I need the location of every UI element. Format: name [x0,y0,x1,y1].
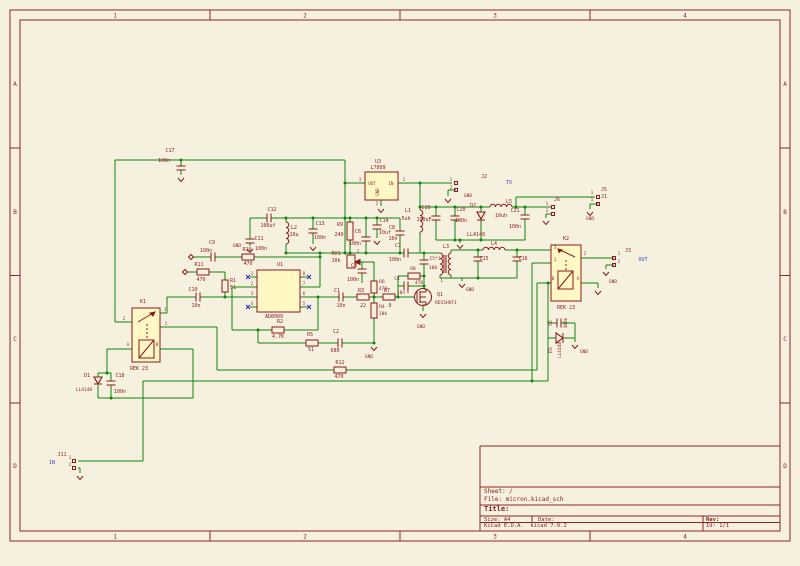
junction-dot [477,277,480,280]
schematic-label: GND [466,287,474,293]
schematic-label: L2 [291,225,297,231]
titleblock-file: File: micron.kicad_sch [484,496,563,503]
symbol-polygon [556,333,563,343]
schematic-label: 100n [200,248,212,254]
schematic-label: 100uf [260,223,275,229]
schematic-label: REK 23 [130,366,148,372]
component-body-K2[interactable] [551,245,581,301]
schematic-label: LL4148 [557,342,563,359]
schematic-label: G [407,289,410,294]
schematic-label: L3 [443,244,449,250]
component-body-U3[interactable] [365,172,398,200]
schematic-label: 100n [509,224,521,230]
schematic-label: REK 23 [557,305,575,311]
schematic-label: GND [375,188,380,196]
schematic-label: L1 [405,208,411,214]
schematic-label: 1 [591,197,594,202]
resistor-R8[interactable] [408,273,420,279]
schematic-label: D1 [84,373,90,379]
frame-row-label: B [13,209,17,216]
gnd-flag-icon [378,209,384,213]
schematic-label: 470 [243,261,252,267]
gnd-flag-icon [445,199,451,203]
net-flag-icon [183,270,188,275]
resistor-R3[interactable] [357,294,369,300]
schematic-label: RD15HVF1 [435,300,457,306]
schematic-label: R10 [242,247,251,253]
schematic-label: D3 [548,347,554,353]
schematic-label: C19 [421,205,430,211]
resistor-R12[interactable] [334,367,346,373]
junction-dot [319,256,322,259]
resistor-R2[interactable] [272,327,284,333]
schematic-label: 2 [251,281,254,286]
schematic-label: C9 [209,240,215,246]
schematic-label: C7 [395,243,401,249]
frame-col-label: 2 [303,534,307,541]
gnd-flag-icon [310,247,316,251]
schematic-label: C21 [510,208,519,214]
schematic-label: 100n [349,241,361,247]
hier-label-tx: TX [506,180,512,186]
schematic-label: GND [365,354,373,360]
junction-dot [224,296,227,299]
gnd-flag-icon [77,476,83,480]
frame-col-label: 3 [493,13,497,20]
schematic-label: OUT [368,181,376,186]
schematic-label: 470 [415,280,423,286]
schematic-label: C6 [548,320,554,326]
schematic-label: 22 [360,303,366,309]
frame-row-label: C [13,336,17,343]
schematic-label: 100n [347,277,359,283]
junction-dot [285,252,288,255]
gnd-flag-icon [587,212,593,216]
schematic-label: 100n [114,389,126,395]
junction-dot [459,239,462,242]
schematic-label: C4 [394,276,400,282]
schematic-label: J11 [57,452,66,458]
connector-pin[interactable] [455,182,458,185]
schematic-label: 2 [584,251,587,256]
schematic-label: 100n [158,158,170,164]
junction-dot [349,252,352,255]
schematic-label: 5uh [401,216,410,222]
schematic-label: R9 [337,222,343,228]
schematic-label: 100n [455,218,467,224]
schematic-label: 10k [379,311,387,317]
schematic-label: J6 [554,197,560,203]
schematic-label: 1 [251,271,254,276]
schematic-label: R1 [230,278,236,284]
schematic-label: 470 [379,286,387,292]
schematic-label: 10n [191,303,200,309]
schematic-label: K1 [140,299,146,305]
connector-pin[interactable] [73,467,76,470]
schematic-label: 100n [255,246,267,252]
gnd-flag-icon [457,245,463,249]
schematic-label: 51 [230,285,236,291]
resistor-R11[interactable] [197,269,209,275]
gnd-flag-icon [374,241,380,245]
schematic-label: RV1 [331,251,340,257]
junction-dot [180,159,183,162]
component-body-U1[interactable] [257,270,300,312]
schematic-label: C20 [456,207,465,213]
schematic-label: C3 [351,263,357,269]
schematic-label: A [127,342,130,347]
schematic-label: R2 [277,319,283,325]
inductor-L2[interactable] [286,222,289,244]
junction-dot [524,206,527,209]
resistor-R1[interactable] [222,280,228,292]
gnd-flag-icon [420,314,426,318]
component-body-K1[interactable] [132,308,160,362]
diode-D2[interactable] [477,212,485,219]
junction-dot [423,252,426,255]
junction-dot [344,252,347,255]
junction-dot [547,282,550,285]
schematic-label: 7 [303,281,306,286]
schematic-label: 100n [389,257,401,263]
resistor-R7[interactable] [383,294,395,300]
inductor-L4[interactable] [483,247,505,250]
junction-dot [477,249,480,252]
symbol-polygon [477,212,485,219]
junction-dot [285,217,288,220]
schematic-label: 10uh [495,213,507,219]
schematic-label: 10n [397,290,405,296]
schematic-label: 10n [388,236,397,242]
schematic-label: D2 [470,203,476,209]
schematic-label: GND [609,279,617,285]
schematic-canvas[interactable]: 11223344AABBCCDDC17100nU3L7809OUTINGND31… [0,0,800,566]
schematic-label: C2 [333,329,339,335]
schematic-label: 51 [308,347,314,353]
junction-dot [319,252,322,255]
schematic-label: C5*1 [430,256,441,262]
schematic-label: C1 [334,288,340,294]
junction-dot [257,329,260,332]
schematic-label: L7809 [370,165,385,171]
schematic-label: C11 [254,236,263,242]
gnd-flag-icon [595,291,601,295]
schematic-label: 1 [69,455,72,460]
resistor-R9[interactable] [347,222,353,240]
schematic-label: C18 [115,373,124,379]
schematic-label: C16 [518,256,527,262]
titleblock-generator: KiCad E.D.A. kicad 7.0.2 [484,523,567,530]
resistor-R10[interactable] [242,254,254,260]
frame-col-label: 3 [493,534,497,541]
schematic-label: L4 [491,241,497,247]
schematic-label: 3 [359,177,362,182]
frame-row-label: B [783,209,787,216]
schematic-label: Q1 [437,292,443,298]
schematic-label: GND [233,243,241,249]
schematic-label: L5 [506,199,512,205]
junction-dot [516,249,519,252]
schematic-label: J5 [601,187,607,193]
symbol-polygon [94,377,102,384]
junction-dot [480,206,483,209]
junction-dot [373,296,376,299]
frame-col-label: 4 [683,534,687,541]
connector-pin[interactable] [597,196,600,199]
schematic-label: 6 [303,291,306,296]
frame-col-label: 2 [303,13,307,20]
schematic-label: C12 [267,207,276,213]
junction-dot [531,380,534,383]
schematic-label: C17 [165,148,174,154]
schematic-label: 8 [303,271,306,276]
junction-dot [373,342,376,345]
schematic-label: GND [586,216,594,222]
frame-row-label: D [783,463,787,470]
gnd-flag-icon [543,221,549,225]
schematic-label: K2 [563,236,569,242]
resistor-R5[interactable] [306,340,318,346]
schematic-label: 1 [591,190,594,195]
schematic-label: R8 [410,266,416,272]
gnd-flag-icon [371,347,377,351]
schematic-label: 1 [546,201,549,206]
schematic-label: C15 [479,256,488,262]
schematic-label: R5 [307,332,313,338]
junction-dot [349,217,352,220]
schematic-label: J2 [481,174,487,180]
schematic-label: 3 [251,291,254,296]
titleblock-title-label: Title: [484,506,509,513]
frame-row-label: A [13,81,17,88]
schematic-label: 1 [450,177,453,182]
schematic-label: 2 [450,185,453,190]
junction-dot [423,275,426,278]
connector-pin[interactable] [552,213,555,216]
schematic-label: J1 [601,194,607,200]
schematic-page: 11223344AABBCCDDC17100nU3L7809OUTINGND31… [0,0,800,566]
schematic-label: 10k [331,258,340,264]
gnd-flag-icon [603,272,609,276]
schematic-label: 2 [69,462,72,467]
schematic-label: C6 [355,229,361,235]
junction-dot [399,252,402,255]
schematic-label: GND [417,324,425,330]
frame-row-label: C [783,336,787,343]
schematic-label: 0 [388,303,391,309]
frame-col-label: 1 [113,534,117,541]
schematic-label: 680 [330,348,339,354]
junction-dot [480,239,483,242]
frame-row-label: D [13,463,17,470]
schematic-label: J3 [625,248,631,254]
titleblock-id: Id: 1/1 [706,523,729,530]
net-flag-icon [189,255,194,260]
schematic-label: 3 [164,307,167,312]
resistor-R6[interactable] [371,281,377,293]
schematic-label: C14 [379,218,388,224]
frame-row-label: A [783,81,787,88]
schematic-label: 10u [289,232,298,238]
schematic-label: 470 [334,374,343,380]
connector-pin[interactable] [73,460,76,463]
schematic-label: 1 [618,251,621,256]
schematic-label: IN [389,181,394,186]
schematic-label: LL4148 [467,232,485,238]
schematic-label: 1 [165,321,168,326]
schematic-label: 2 [618,259,621,264]
schematic-label: 100n [563,317,569,328]
junction-dot [454,239,457,242]
schematic-label: 470 [196,277,205,283]
schematic-label: 4 [251,301,254,306]
junction-dot [344,182,347,185]
junction-dot [110,397,113,400]
schematic-label: GND [580,349,588,355]
schematic-label: C10 [188,287,197,293]
inductor-L3-sec[interactable] [448,253,451,275]
schematic-label: 100uF [416,217,431,223]
schematic-label: 2 [123,316,126,321]
junction-dot [344,217,347,220]
schematic-label: R4 [379,304,385,310]
titleblock-sheet: Sheet: / [484,488,513,495]
schematic-label: 240 [334,232,343,238]
junction-dot [365,217,368,220]
schematic-label: R12 [335,360,344,366]
schematic-label: 5 [303,301,306,306]
schematic-label: L [441,278,444,284]
schematic-label: 100 [429,265,437,271]
schematic-label: R11 [194,262,203,268]
schematic-label: C13 [315,221,324,227]
junction-dot [365,252,368,255]
diode-D1[interactable] [94,377,102,384]
schematic-label: 1 [403,177,406,182]
schematic-label: LL4148 [76,387,93,393]
frame-col-label: 4 [683,13,687,20]
schematic-label: 2 [376,201,379,206]
junction-dot [435,206,438,209]
gnd-flag-icon [178,178,184,182]
hier-label-in: IN [49,460,55,466]
schematic-label: U1 [277,262,283,268]
gnd-flag-icon [572,345,578,349]
schematic-label: R3 [358,288,364,294]
junction-dot [312,217,315,220]
resistor-R4[interactable] [371,303,377,318]
diode-D3[interactable] [556,333,563,343]
gnd-flag-icon [459,284,465,288]
connector-pin[interactable] [552,206,555,209]
schematic-label: 100n [314,235,326,241]
junction-dot [106,372,109,375]
schematic-label: R6 [379,279,385,285]
schematic-label: 2 [546,208,549,213]
junction-dot [376,217,379,220]
hier-label-out: OUT [638,257,647,263]
junction-dot [317,296,320,299]
schematic-label: GND [464,193,472,199]
frame-col-label: 1 [113,13,117,20]
schematic-label: 10n [336,303,345,309]
schematic-label: 4.7K [272,334,284,340]
junction-dot [419,182,422,185]
schematic-label: C8 [389,225,395,231]
